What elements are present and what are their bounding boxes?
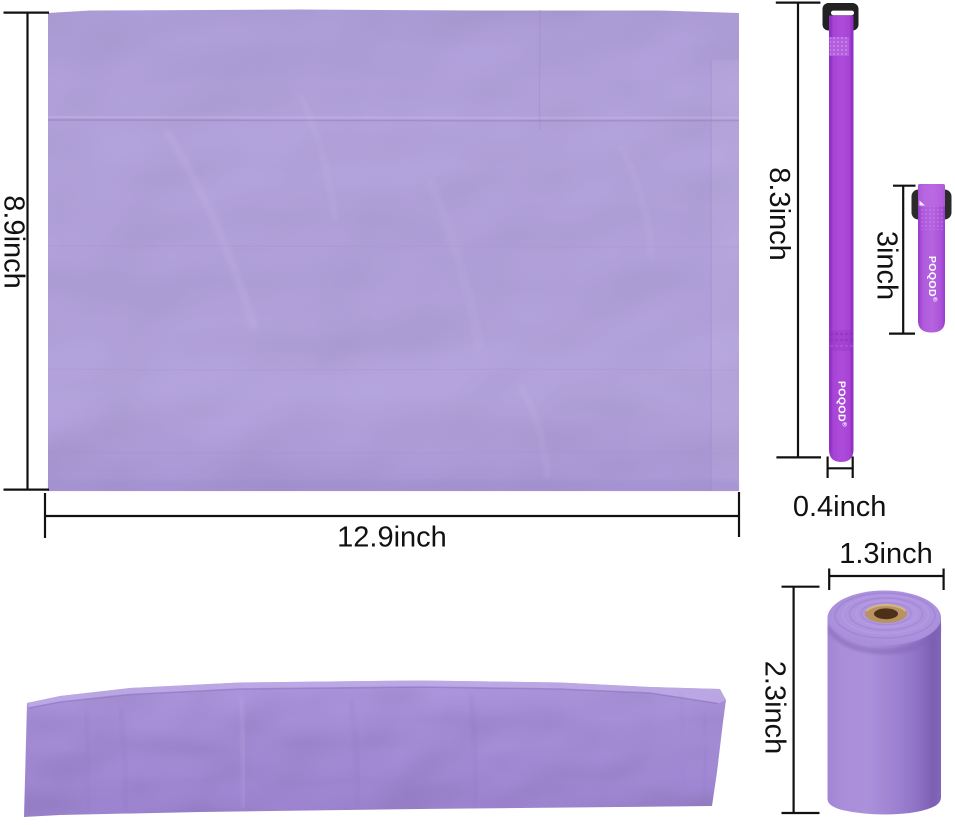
svg-text:3inch: 3inch [870,231,902,300]
svg-text:8.9inch: 8.9inch [0,195,30,289]
svg-text:POQOD®: POQOD® [836,381,850,427]
svg-text:0.4inch: 0.4inch [793,491,887,523]
svg-text:8.3inch: 8.3inch [763,167,795,261]
svg-text:1.3inch: 1.3inch [839,538,933,570]
svg-text:2.3inch: 2.3inch [758,661,790,755]
svg-text:12.9inch: 12.9inch [337,522,447,554]
svg-text:POQOD®: POQOD® [926,256,940,302]
